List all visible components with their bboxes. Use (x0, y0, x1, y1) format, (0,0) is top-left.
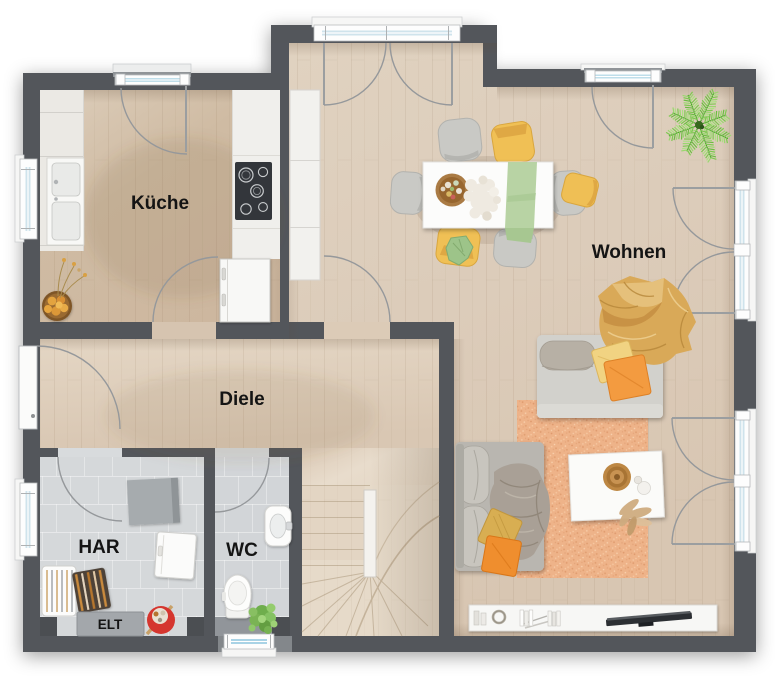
svg-text:Diele: Diele (219, 389, 264, 410)
svg-text:ELT: ELT (98, 617, 123, 632)
svg-text:Wohnen: Wohnen (592, 242, 667, 263)
svg-text:HAR: HAR (78, 537, 119, 558)
svg-text:WC: WC (226, 540, 258, 561)
svg-text:Küche: Küche (131, 193, 189, 214)
